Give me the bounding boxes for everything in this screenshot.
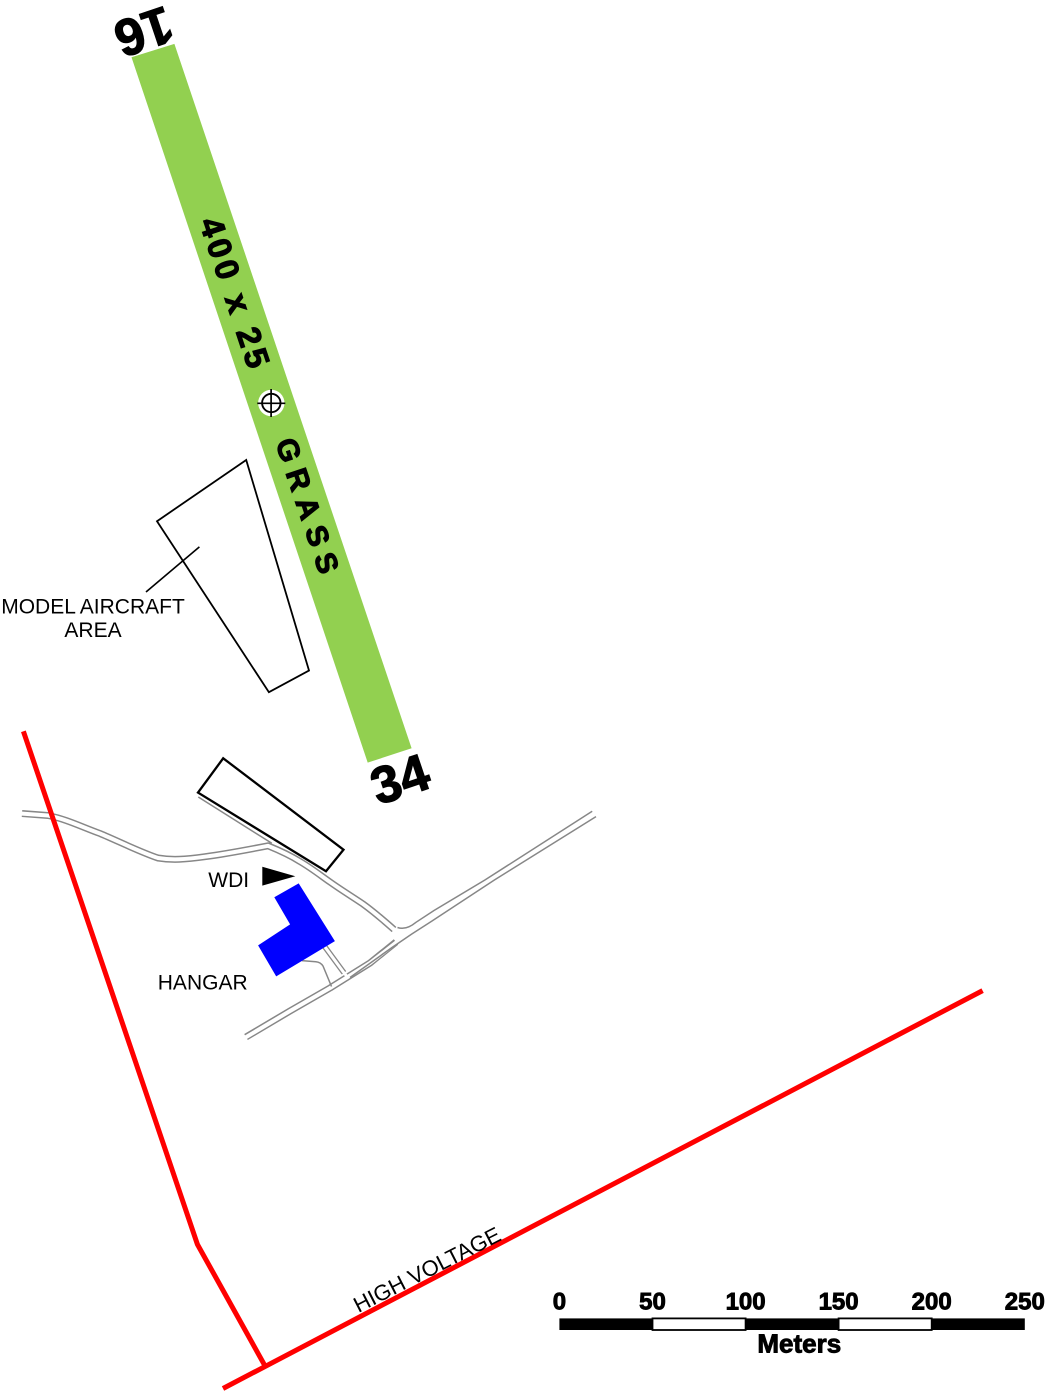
svg-text:Meters: Meters <box>757 1328 841 1358</box>
svg-text:50: 50 <box>639 1288 666 1315</box>
svg-text:WDI: WDI <box>208 869 249 892</box>
svg-text:HANGAR: HANGAR <box>158 972 248 995</box>
svg-text:MODEL AIRCRAFT: MODEL AIRCRAFT <box>1 596 185 619</box>
svg-text:150: 150 <box>819 1288 859 1315</box>
svg-text:AREA: AREA <box>64 619 121 642</box>
svg-text:200: 200 <box>912 1288 952 1315</box>
svg-text:0: 0 <box>553 1288 566 1315</box>
svg-text:250: 250 <box>1005 1288 1045 1315</box>
svg-text:100: 100 <box>726 1288 766 1315</box>
